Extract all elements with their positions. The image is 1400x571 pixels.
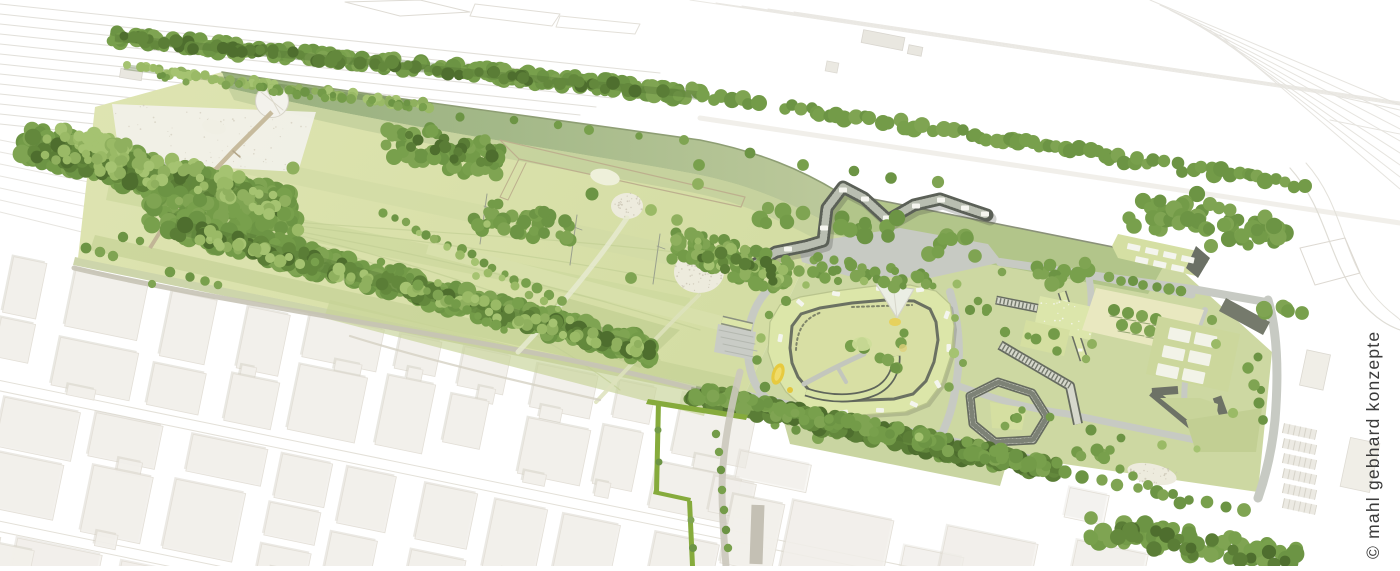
svg-text:© mahl gebhard konzepte: © mahl gebhard konzepte [1363, 331, 1383, 559]
